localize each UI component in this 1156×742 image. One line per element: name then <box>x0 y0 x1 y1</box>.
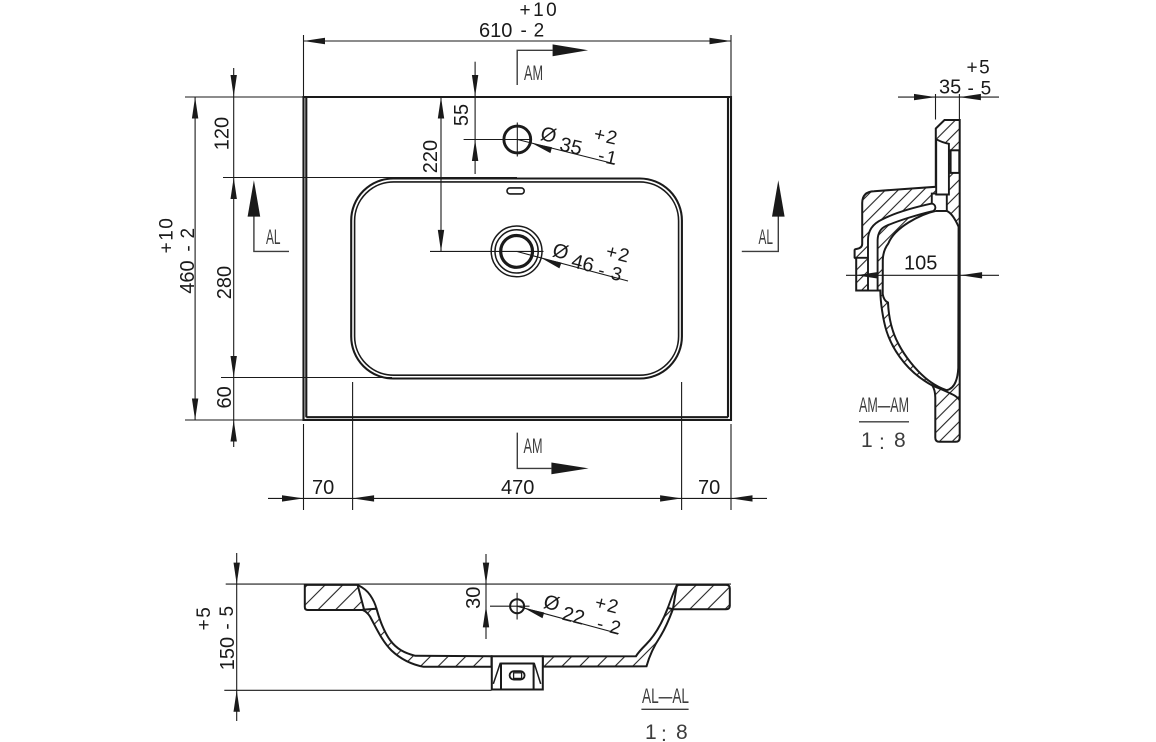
svg-text:470: 470 <box>501 477 534 499</box>
svg-text:60: 60 <box>214 386 236 408</box>
svg-text:AM: AM <box>524 435 543 458</box>
svg-text:- 2: - 2 <box>178 226 199 251</box>
svg-text:1: 1 <box>861 429 873 452</box>
svg-text:- 2: - 2 <box>521 21 546 42</box>
svg-text:70: 70 <box>698 477 720 499</box>
svg-text:150: 150 <box>217 637 239 670</box>
svg-text:280: 280 <box>214 266 236 299</box>
svg-text:AM—AM: AM—AM <box>859 394 909 417</box>
svg-text:460: 460 <box>177 260 199 293</box>
svg-text:- 5: - 5 <box>217 604 238 629</box>
svg-text:70: 70 <box>312 477 334 499</box>
svg-text:35: 35 <box>939 77 961 99</box>
svg-text:+10: +10 <box>156 217 177 254</box>
svg-text:610: 610 <box>479 20 512 42</box>
svg-text:30: 30 <box>463 587 485 609</box>
svg-text:105: 105 <box>904 253 937 275</box>
svg-text:- 5: - 5 <box>968 79 993 100</box>
svg-text:1: 1 <box>645 721 657 742</box>
svg-text:+5: +5 <box>194 606 215 631</box>
svg-text:220: 220 <box>420 140 442 173</box>
svg-text:AL: AL <box>759 226 774 249</box>
svg-text:8: 8 <box>676 721 688 742</box>
svg-text:55: 55 <box>451 104 473 126</box>
svg-text:AL—AL: AL—AL <box>642 685 689 708</box>
svg-text:8: 8 <box>894 429 906 452</box>
svg-text:+5: +5 <box>967 58 992 79</box>
svg-text::: : <box>879 431 885 454</box>
svg-text:AL: AL <box>266 226 281 249</box>
svg-text:+10: +10 <box>520 0 560 21</box>
svg-text::: : <box>661 723 667 742</box>
svg-text:120: 120 <box>212 117 234 150</box>
svg-text:AM: AM <box>524 62 543 85</box>
